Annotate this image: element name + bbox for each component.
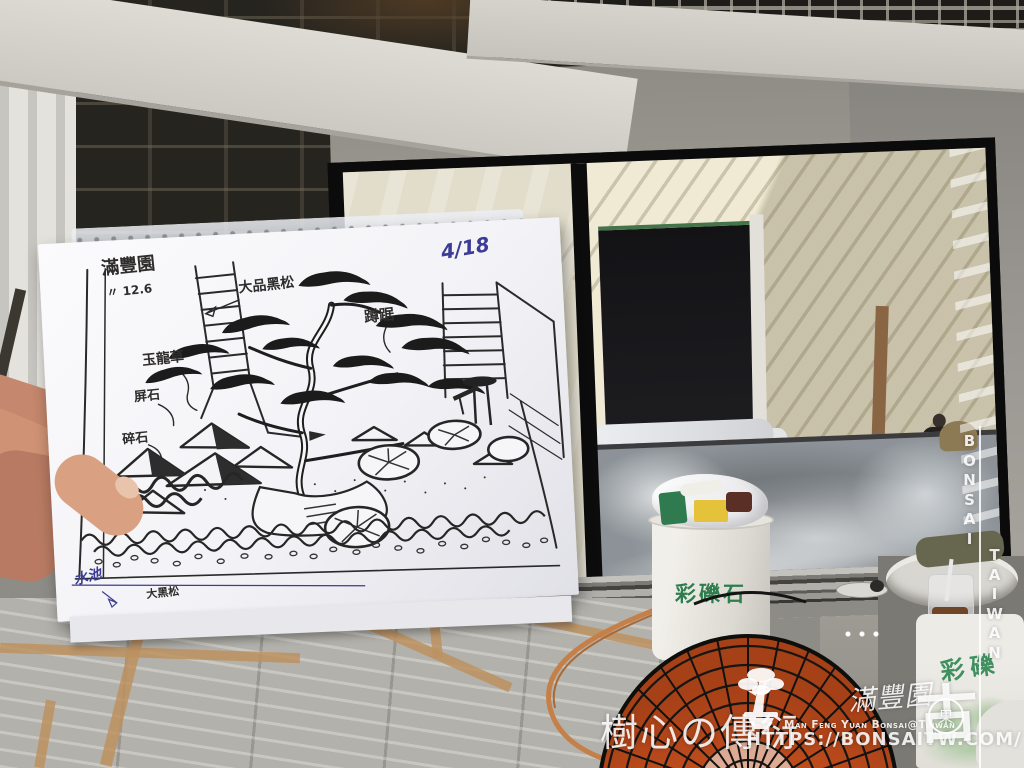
garden-design-sketch: 滿豐園 〃 12.6 4/18 大品黑松 玉龍草 屏石 碎石 蹲踞 水池 大黑松 xyxy=(37,208,598,652)
watermark-bonsai-vertical: BONSAI xyxy=(961,432,978,549)
sketch-drawing xyxy=(42,221,575,617)
watermark-seal-icon: 果 xyxy=(928,698,964,734)
sketch-label-blackpine: 大黑松 xyxy=(146,583,180,602)
yellow-box xyxy=(694,500,728,522)
watermark-seal-inner: 果 xyxy=(938,706,953,727)
construction-site-photo: 彩礫石 彩礫 xyxy=(0,0,1024,768)
dark-doorway xyxy=(598,221,759,453)
watermark-taiwan-vertical: TAIWAN xyxy=(986,546,1003,663)
sketch-label-stone: 屏石 xyxy=(133,384,161,406)
dark-item xyxy=(726,492,752,512)
bonsai-tree-logo-icon xyxy=(732,666,790,732)
watermark-vertical-line xyxy=(979,426,981,768)
sketch-label-tsukubai: 蹲踞 xyxy=(363,303,395,327)
sketch-label-gravel: 碎石 xyxy=(121,426,149,448)
